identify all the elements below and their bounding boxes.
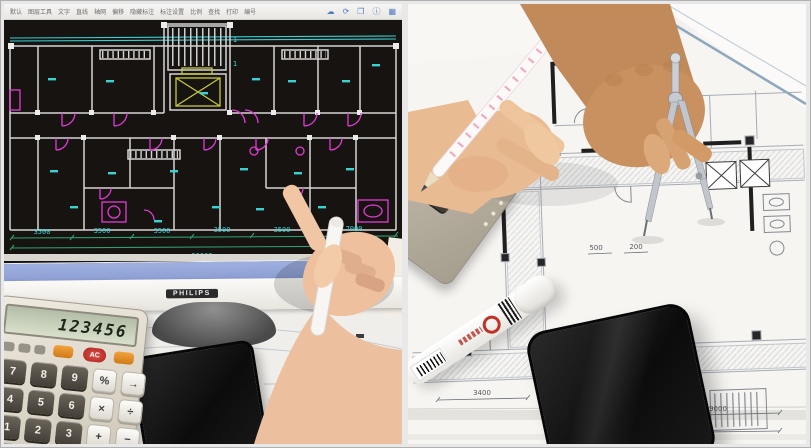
calculator-key: 2 (24, 417, 52, 443)
calculator: 123456 AC 7 8 9 % → 4 5 6 (4, 295, 149, 444)
calculator-key: × (88, 396, 114, 421)
cad-dimension-lines (10, 232, 398, 250)
toolbar-item: 直线 (76, 7, 88, 16)
calculator-key: 6 (58, 393, 86, 419)
marker-red-text (458, 326, 483, 345)
calculator-key: → (120, 371, 146, 396)
sync-icon: ⟳ (343, 8, 350, 16)
cad-dim-label: 3500 (274, 226, 291, 234)
cad-floor-plan: 1 1 3500 3500 3500 3500 3500 7000 56008 (4, 20, 402, 254)
cad-dim-label: 3500 (94, 227, 111, 235)
photo-collage-frame: 默认 图层工具 文字 直线 轴网 偏移 隐藏标注 标注设置 比例 查找 打印 编… (0, 0, 811, 448)
toolbar-item: 偏移 (112, 7, 124, 16)
cad-screen: 1 1 3500 3500 3500 3500 3500 7000 56008 (4, 20, 402, 254)
toolbar-item: 文字 (58, 7, 70, 16)
calculator-key: 4 (421, 177, 459, 214)
apps-icon: ▦ (388, 8, 396, 16)
calculator-key: 8 (30, 361, 58, 387)
calculator-key: − (114, 427, 140, 444)
toolbar-item: 隐藏标注 (130, 7, 154, 16)
cad-dim-label: 7000 (346, 225, 363, 233)
stair-label: 1 (233, 36, 237, 44)
toolbar-item: 编号 (244, 7, 256, 16)
blueprint-detail-marks (354, 334, 372, 370)
cad-dim-label: 3500 (154, 227, 171, 235)
calculator-key: 3 (55, 420, 83, 444)
calculator-key: 4 (4, 386, 24, 412)
calculator-orange-key (53, 345, 74, 359)
bp-dim-label: 500 (589, 244, 602, 252)
calculator-key: ÷ (117, 399, 143, 424)
calculator-key: % (91, 368, 117, 393)
layers-icon: ❐ (357, 8, 364, 16)
calculator-ac-key: AC (82, 347, 107, 363)
calculator-memory-key (33, 344, 46, 354)
calculator-key: 0 (4, 442, 18, 444)
toolbar-item: 轴网 (94, 7, 106, 16)
bp-dim-label: 9000 (709, 405, 727, 413)
stair-label: 1 (233, 60, 237, 68)
info-icon: ⓘ (372, 8, 380, 16)
bp-dim-label: 200 (629, 243, 642, 251)
bp-dim-label: 3400 (473, 389, 491, 397)
smartphone (130, 339, 271, 444)
calculator-key: 9 (60, 365, 88, 391)
calculator-orange-key (114, 351, 135, 365)
cloud-icon: ☁ (327, 8, 335, 16)
toolbar-item: 查找 (208, 7, 220, 16)
calculator-keypad: 7 8 9 % → 4 5 6 × ÷ 1 2 3 + − 0 00 (4, 353, 142, 444)
toolbar-icon-group: ☁ ⟳ ❐ ⓘ ▦ (327, 8, 396, 16)
calculator-key: + (85, 424, 111, 444)
cad-toolbar: 默认 图层工具 文字 直线 轴网 偏移 隐藏标注 标注设置 比例 查找 打印 编… (4, 4, 402, 20)
monitor-brand-logo: PHILIPS (166, 289, 218, 299)
toolbar-item: 比例 (190, 7, 202, 16)
toolbar-item: 图层工具 (28, 7, 52, 16)
toolbar-item: 打印 (226, 7, 238, 16)
calculator-key: 7 (4, 358, 27, 384)
calculator-memory-key (18, 342, 31, 352)
calculator-memory-key (4, 341, 15, 351)
monitor-stand (152, 302, 276, 348)
cad-dim-label: 3500 (214, 226, 231, 234)
calculator-key: 1 (4, 414, 21, 440)
photo-left-cad-monitor: 默认 图层工具 文字 直线 轴网 偏移 隐藏标注 标注设置 比例 查找 打印 编… (4, 4, 402, 444)
photo-right-blueprints: 500 200 3400 9000 30700 0 0 1 4 (408, 4, 806, 444)
toolbar-item: 标注设置 (160, 7, 184, 16)
calculator-key: 5 (27, 389, 55, 415)
toolbar-item: 默认 (10, 7, 22, 16)
cad-dim-label: 3500 (34, 228, 51, 236)
